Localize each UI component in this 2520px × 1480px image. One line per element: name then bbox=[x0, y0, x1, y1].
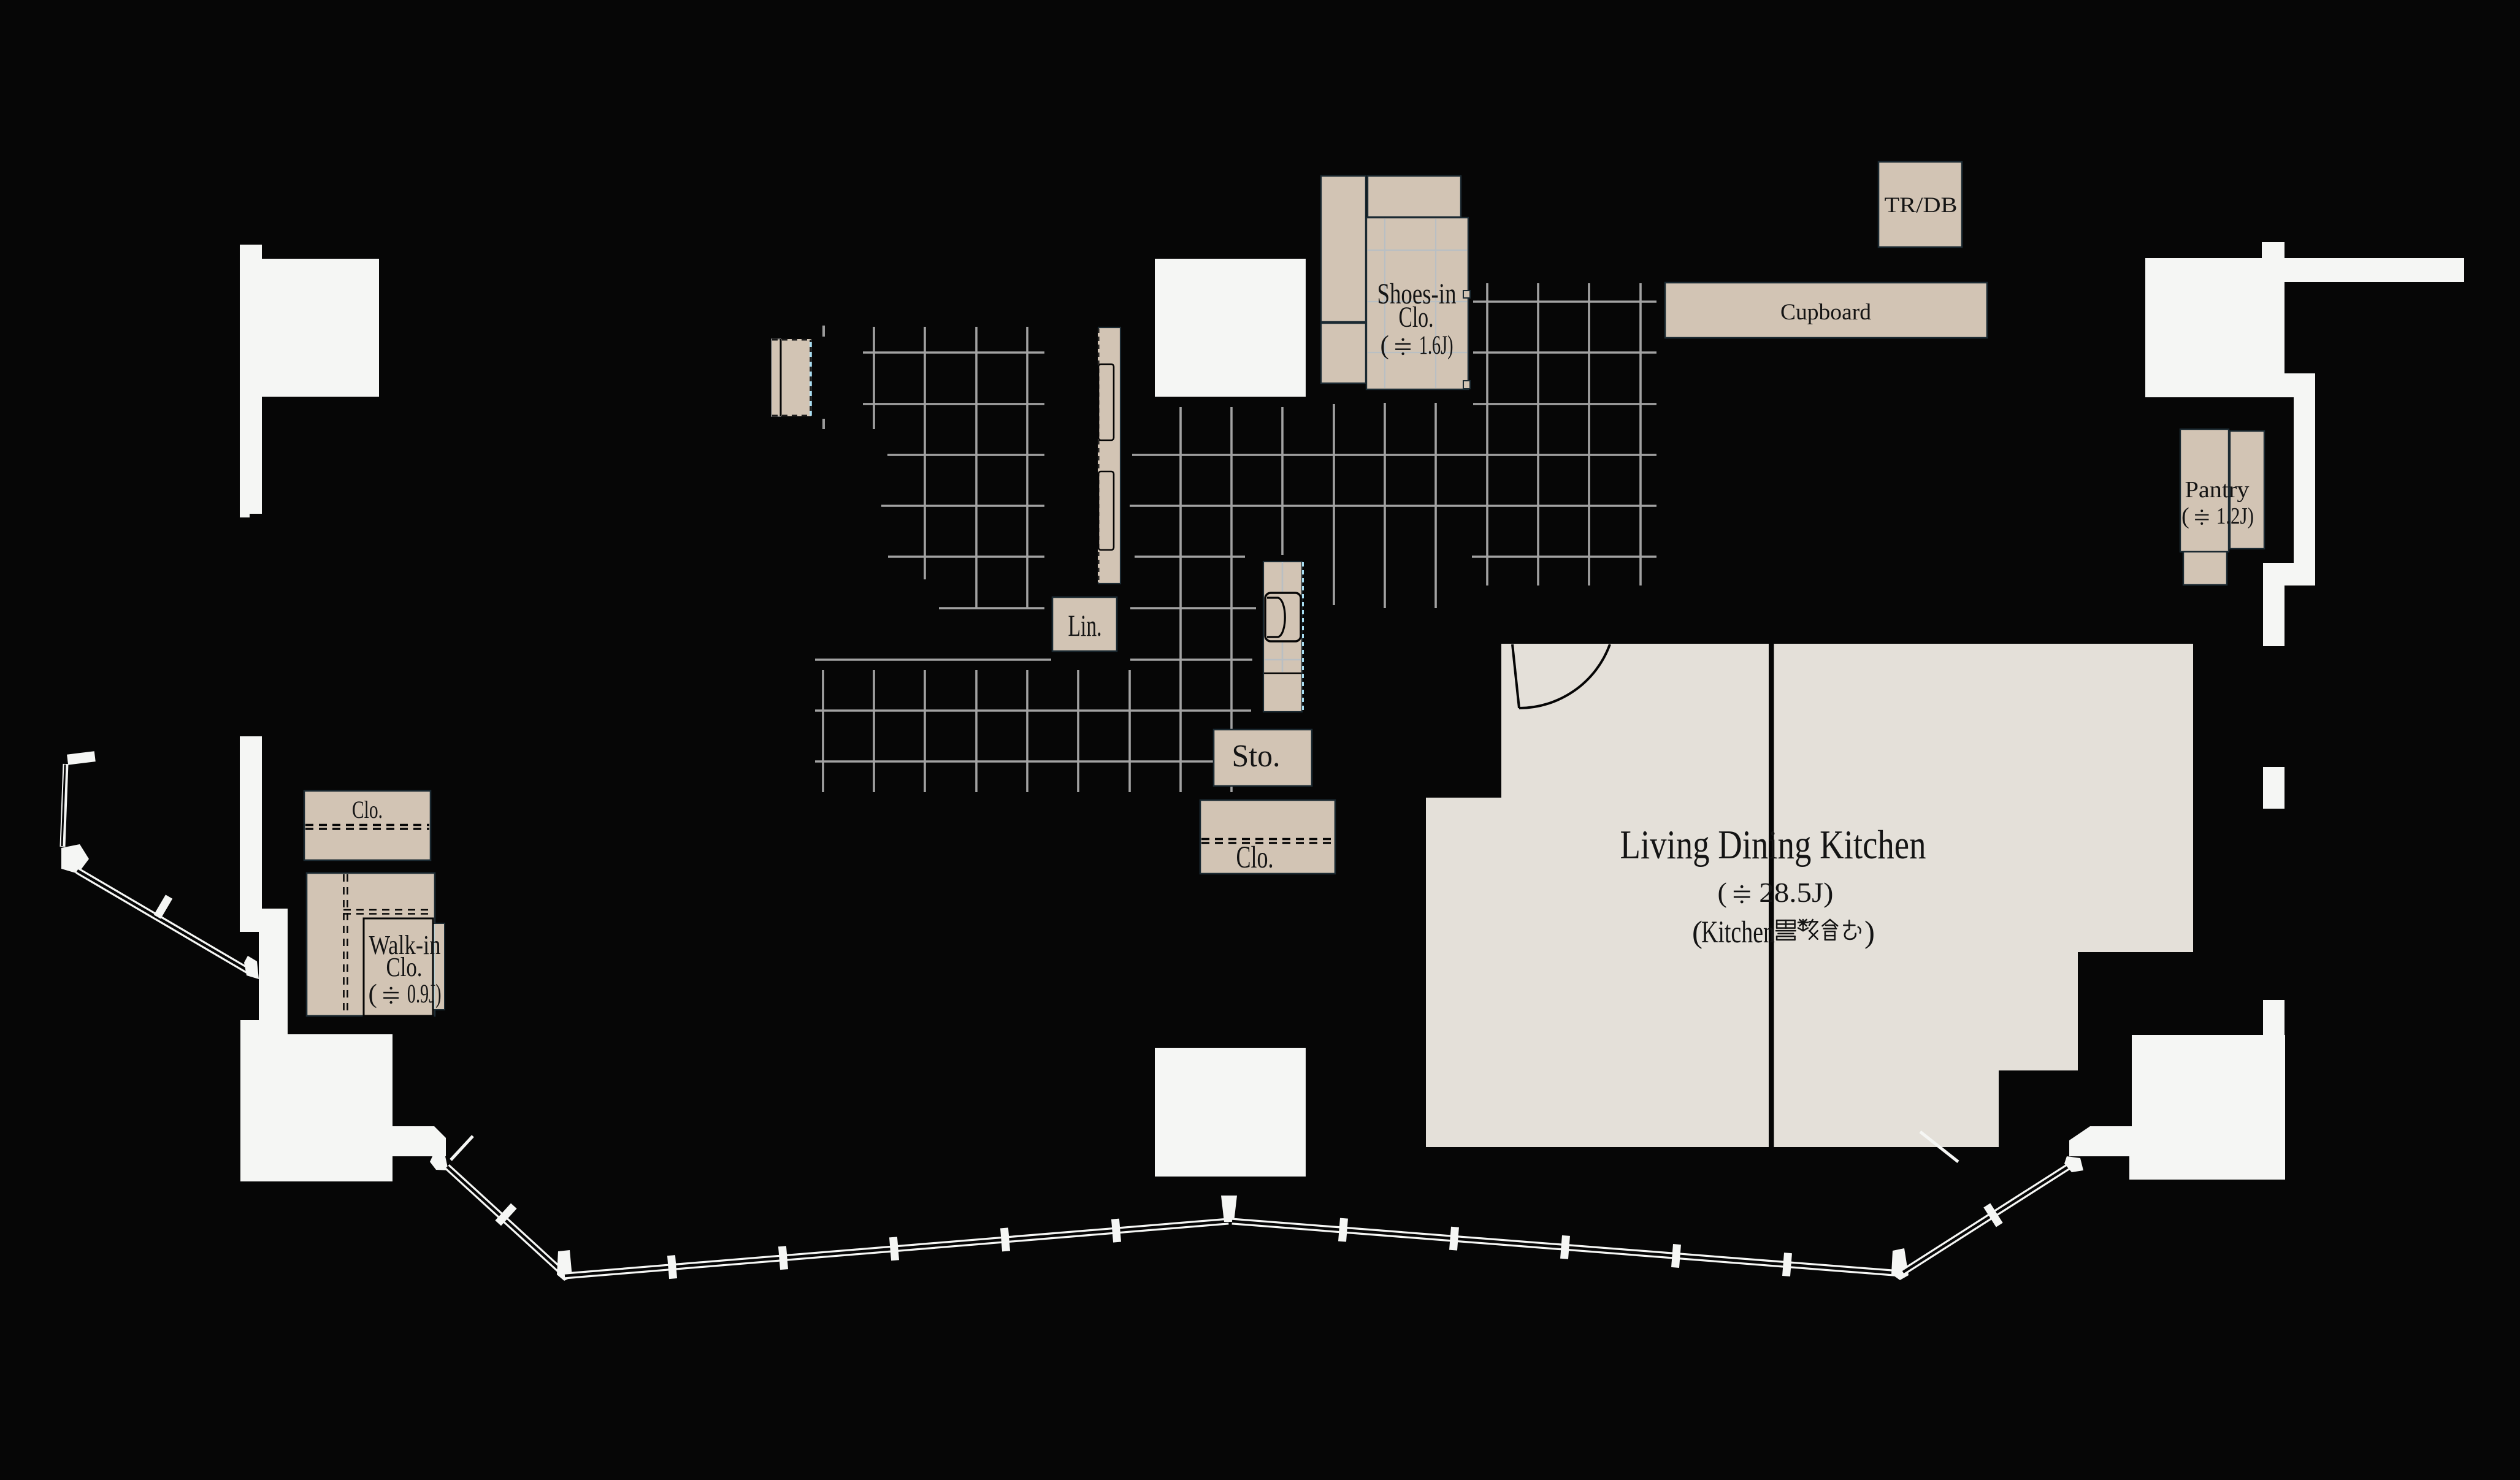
svg-text:1.2J): 1.2J) bbox=[2216, 503, 2254, 529]
svg-text:Cupboard: Cupboard bbox=[1780, 300, 1871, 325]
svg-text:(: ( bbox=[369, 980, 377, 1009]
svg-text:Clo.: Clo. bbox=[1236, 841, 1274, 875]
svg-text:Lin.: Lin. bbox=[1068, 608, 1102, 643]
svg-text:Pantry: Pantry bbox=[2185, 477, 2250, 503]
svg-text:Clo.: Clo. bbox=[352, 796, 383, 823]
svg-text:0.9J): 0.9J) bbox=[407, 980, 442, 1009]
svg-text:28.5J): 28.5J) bbox=[1759, 877, 1833, 908]
svg-text:Sto.: Sto. bbox=[1232, 739, 1281, 774]
svg-text:(: ( bbox=[2181, 503, 2189, 529]
svg-text:Clo.: Clo. bbox=[1399, 301, 1434, 334]
svg-text:Kitchen: Kitchen bbox=[1701, 915, 1775, 950]
svg-text:TR/DB: TR/DB bbox=[1885, 193, 1958, 217]
svg-text:Living Dining Kitchen: Living Dining Kitchen bbox=[1620, 822, 1926, 868]
svg-text:(: ( bbox=[1718, 877, 1727, 908]
svg-text:): ) bbox=[1864, 915, 1875, 950]
svg-text:1.6J): 1.6J) bbox=[1419, 331, 1453, 360]
svg-text:Clo.: Clo. bbox=[386, 952, 423, 982]
svg-text:(: ( bbox=[1381, 331, 1389, 360]
